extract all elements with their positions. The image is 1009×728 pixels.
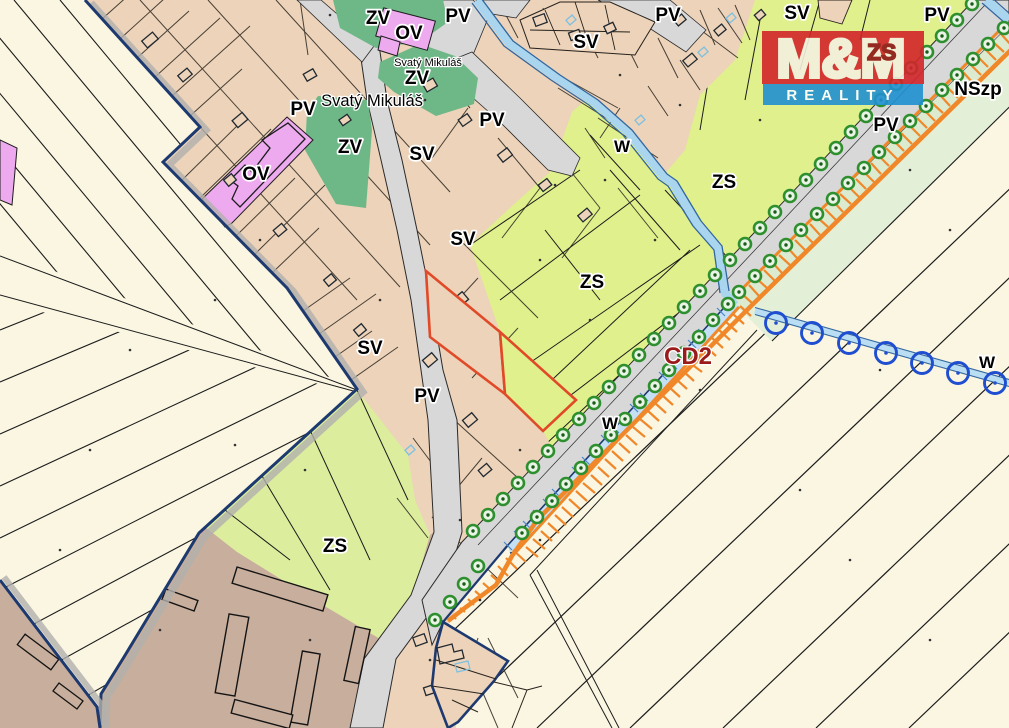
svg-text:CD2: CD2	[664, 343, 712, 370]
svg-text:OV: OV	[242, 164, 270, 185]
svg-text:SV: SV	[784, 3, 810, 24]
svg-text:PV: PV	[479, 110, 505, 131]
svg-text:PV: PV	[290, 99, 316, 120]
svg-text:PV: PV	[655, 5, 681, 26]
svg-text:W: W	[614, 137, 631, 156]
svg-text:SV: SV	[409, 144, 435, 165]
svg-text:ZS: ZS	[712, 172, 736, 193]
svg-text:Svatý Mikuláš: Svatý Mikuláš	[321, 92, 423, 110]
svg-text:REALITY: REALITY	[786, 87, 899, 104]
svg-text:ZV: ZV	[338, 137, 363, 158]
svg-text:SV: SV	[357, 338, 383, 359]
svg-text:ZS: ZS	[867, 39, 896, 65]
svg-text:W: W	[979, 353, 996, 372]
svg-text:SV: SV	[573, 32, 599, 53]
svg-text:OV: OV	[395, 23, 423, 44]
svg-text:PV: PV	[414, 386, 440, 407]
svg-text:ZS: ZS	[323, 536, 347, 557]
svg-text:ZS: ZS	[580, 272, 604, 293]
svg-text:ZV: ZV	[405, 68, 430, 89]
svg-text:PV: PV	[873, 115, 899, 136]
svg-text:PV: PV	[924, 5, 950, 26]
svg-text:ZV: ZV	[366, 8, 391, 29]
svg-text:W: W	[602, 414, 619, 433]
svg-text:PV: PV	[445, 6, 471, 27]
svg-text:SV: SV	[450, 229, 476, 250]
svg-text:NSzp: NSzp	[954, 79, 1002, 100]
